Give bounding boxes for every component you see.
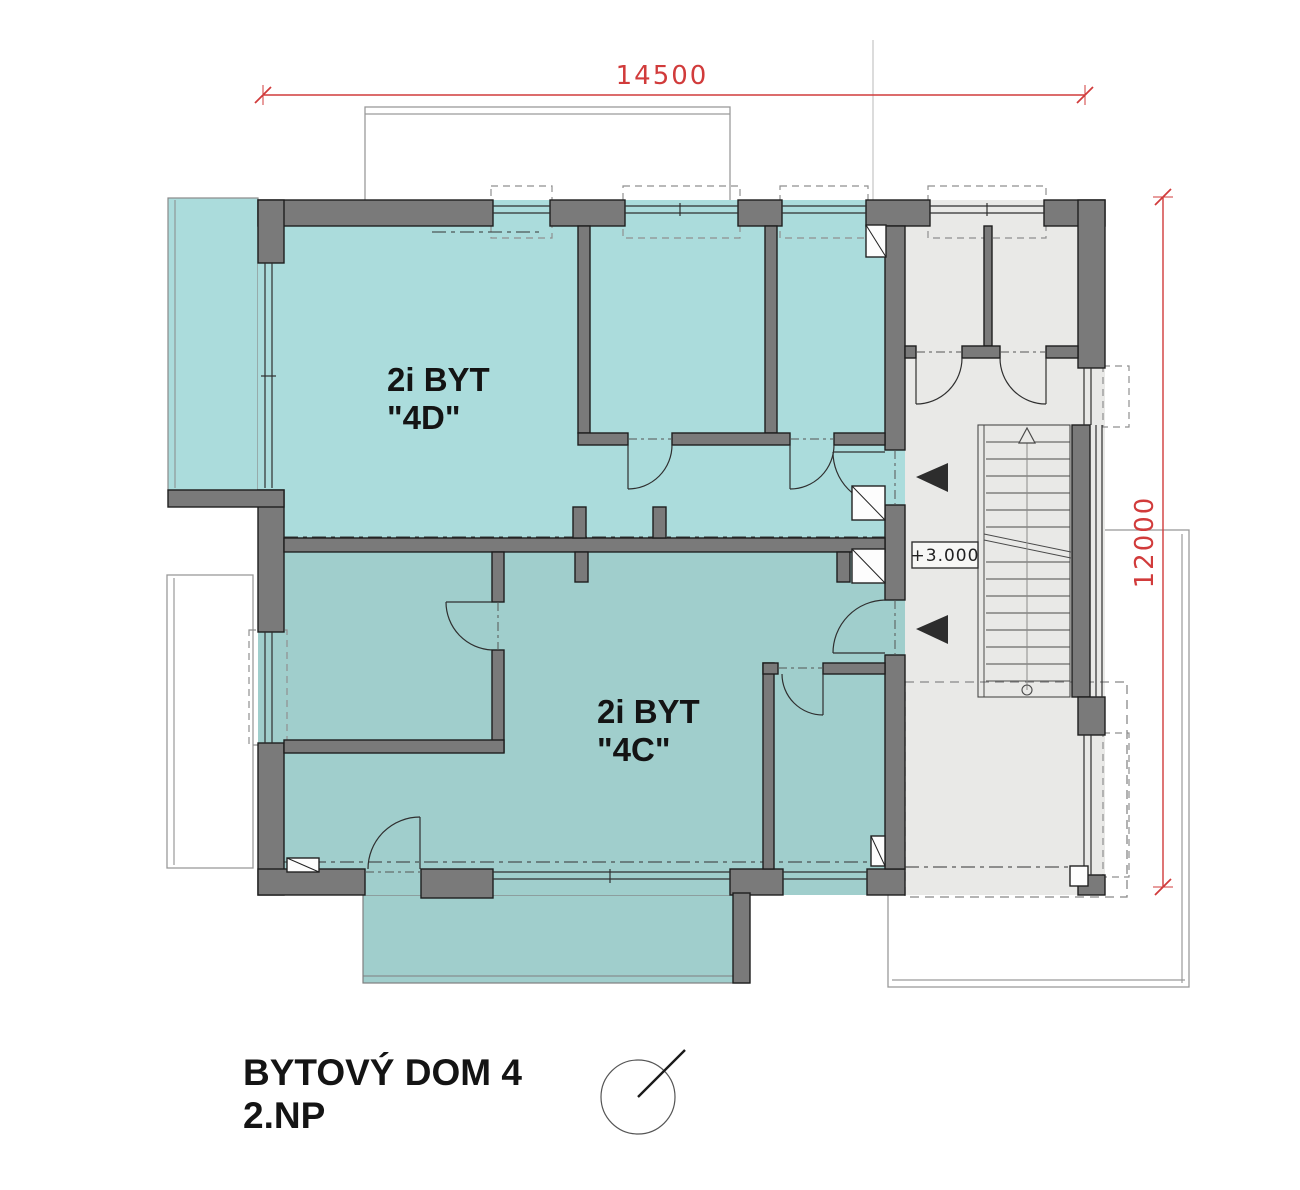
floor-plan-page: +3.000 2i BYT "4D" 2i BYT "4C" 14500 120… xyxy=(0,0,1300,1190)
balcony-4c xyxy=(363,895,749,983)
apartment-4d-label-line2: "4D" xyxy=(387,399,460,436)
terrace-left-outline xyxy=(167,575,253,868)
drawing-title: BYTOVÝ DOM 4 xyxy=(243,1052,522,1093)
apartment-4c-label-line1: 2i BYT xyxy=(597,693,700,730)
balcony-4d xyxy=(168,198,258,490)
apartment-4d-label-line1: 2i BYT xyxy=(387,361,490,398)
floor-plan-drawing: +3.000 2i BYT "4D" 2i BYT "4C" 14500 120… xyxy=(0,0,1300,1190)
dimension-right-value: 12000 xyxy=(1130,496,1160,589)
level-marker: +3.000 xyxy=(911,542,980,568)
dimension-top-value: 14500 xyxy=(616,61,709,91)
level-marker-value: +3.000 xyxy=(911,546,980,566)
balcony-top-outline xyxy=(365,107,730,202)
apartment-4c-label-line2: "4C" xyxy=(597,731,670,768)
column xyxy=(1070,866,1088,886)
drawing-floor: 2.NP xyxy=(243,1095,325,1136)
apartment-4c-area xyxy=(258,553,905,895)
